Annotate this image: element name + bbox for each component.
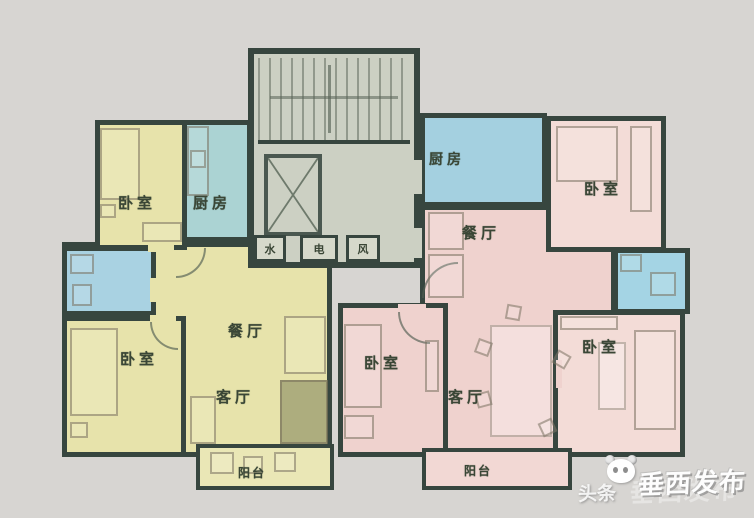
watermark-source: 头条 [578, 478, 617, 506]
bath-fixture [650, 272, 676, 296]
bath-fixture [72, 284, 92, 306]
tv-cabinet [280, 380, 328, 444]
door-gap-left-bedroom-top [148, 244, 174, 252]
bed [634, 330, 676, 430]
air-shaft: 风 [346, 235, 380, 262]
stair-core: 水 电 风 [248, 48, 420, 268]
left-dining-label: 餐厅 [228, 320, 266, 341]
balcony-planter [274, 452, 296, 472]
left-bedroom-main-label: 卧室 [120, 348, 158, 369]
nightstand [100, 204, 116, 218]
watermark: 头条 垂西发布 垂西发布 [578, 455, 754, 515]
dresser [344, 415, 374, 439]
water-shaft-label: 水 [265, 241, 276, 257]
stair-landing [270, 96, 398, 99]
panda-icon [604, 455, 638, 485]
right-balcony-label: 阳台 [464, 462, 492, 479]
right-balcony [422, 448, 572, 490]
right-dining-label: 餐厅 [462, 222, 500, 243]
floorplan-canvas: 水 电 风 [0, 0, 754, 518]
stair-divider [328, 65, 331, 134]
right-bedroom-top-label: 卧室 [584, 178, 622, 199]
dining-table [284, 316, 326, 374]
bed [100, 128, 140, 200]
electric-shaft: 电 [300, 235, 338, 262]
left-bedroom-top-label: 卧室 [118, 192, 156, 213]
bed [556, 126, 618, 182]
watermark-name: 垂西发布 [637, 461, 747, 502]
watermark-ghost: 垂西发布 [629, 469, 739, 510]
wardrobe [560, 316, 618, 330]
right-kitchen-label: 厨房 [429, 149, 465, 169]
elevator-cross [268, 158, 318, 232]
door-gap-core-right-upper [414, 160, 422, 194]
left-balcony-label: 阳台 [238, 464, 266, 481]
chair [505, 304, 522, 321]
staircase [258, 58, 410, 144]
right-bedroom-left-label: 卧室 [364, 352, 402, 373]
dining-table [428, 254, 464, 298]
tv-stand [425, 340, 439, 392]
panda-eye [623, 467, 628, 473]
left-living-label: 客厅 [216, 386, 254, 407]
balcony-planter [210, 452, 234, 474]
door-gap-core-right-lower [414, 228, 422, 258]
door-gap-left-bedroom-main [150, 315, 176, 322]
bath-fixture [620, 254, 642, 272]
nightstand [70, 422, 88, 438]
sofa [190, 396, 216, 444]
right-bedroom-bottom-label: 卧室 [582, 336, 620, 357]
panda-eye [613, 467, 618, 473]
panda-face [607, 459, 635, 483]
elevator-shaft [264, 154, 322, 236]
electric-shaft-label: 电 [314, 241, 325, 257]
bath-fixture [70, 254, 94, 274]
door-gap-left-bathroom [150, 278, 158, 302]
dining-sideboard [428, 212, 464, 250]
kitchen-sink [190, 150, 206, 168]
door-gap-right-bedroom-left [398, 304, 426, 311]
bed [70, 328, 118, 416]
right-living-label: 客厅 [448, 386, 486, 407]
left-kitchen-label: 厨房 [193, 192, 231, 213]
water-shaft: 水 [254, 235, 286, 262]
air-shaft-label: 风 [358, 241, 369, 257]
wardrobe [630, 126, 652, 212]
wardrobe [142, 222, 182, 242]
